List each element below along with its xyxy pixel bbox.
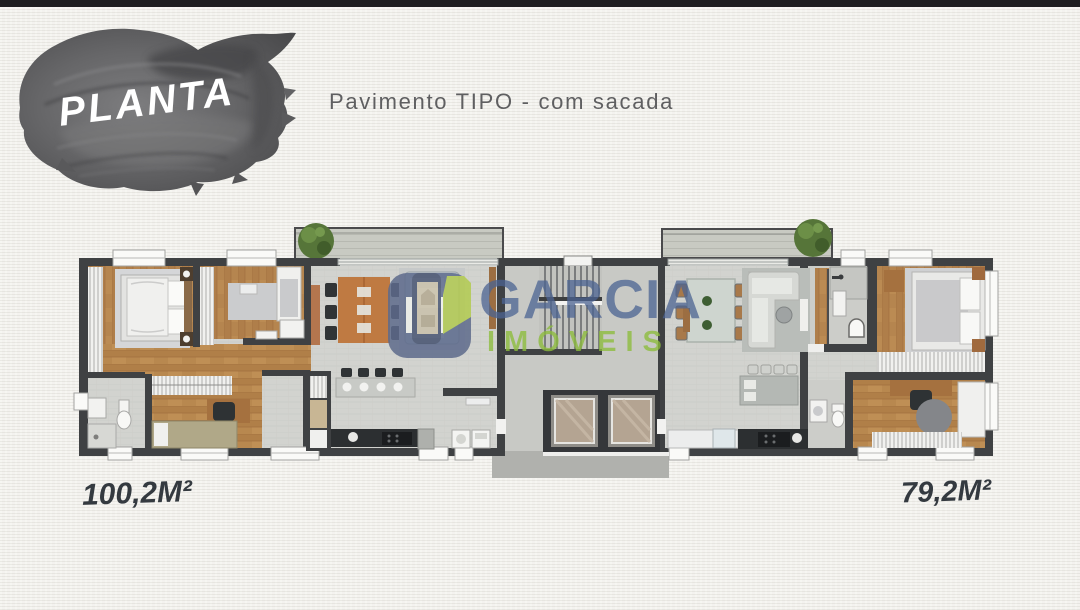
svg-text:100,2M²: 100,2M² (81, 475, 193, 512)
svg-text:IMÓVEIS: IMÓVEIS (487, 324, 671, 358)
svg-text:79,2M²: 79,2M² (901, 474, 994, 509)
svg-text:GARCIA: GARCIA (479, 268, 702, 330)
